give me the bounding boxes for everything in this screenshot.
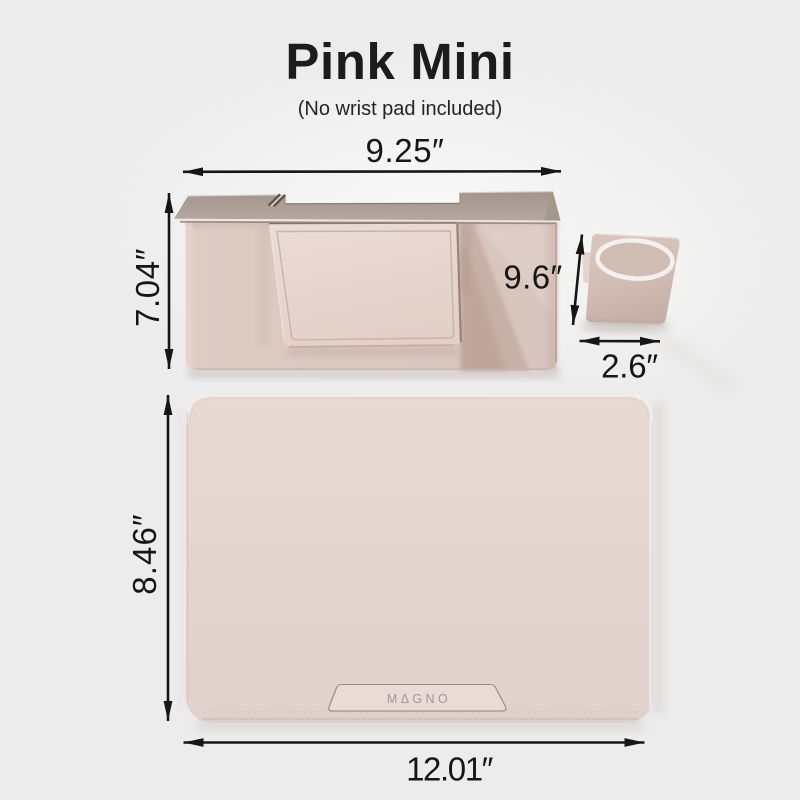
svg-text:8.46″: 8.46″	[126, 513, 163, 594]
svg-text:7.04″: 7.04″	[129, 248, 166, 327]
svg-text:12.01″: 12.01″	[406, 751, 494, 788]
svg-text:9.25″: 9.25″	[366, 132, 445, 169]
svg-text:9.6″: 9.6″	[503, 259, 562, 296]
svg-text:Pink Mini: Pink Mini	[285, 33, 514, 90]
svg-text:(No wrist pad included): (No wrist pad included)	[298, 98, 503, 120]
svg-text:2.6″: 2.6″	[601, 348, 658, 385]
svg-text:MΔGNO: MΔGNO	[387, 692, 451, 706]
